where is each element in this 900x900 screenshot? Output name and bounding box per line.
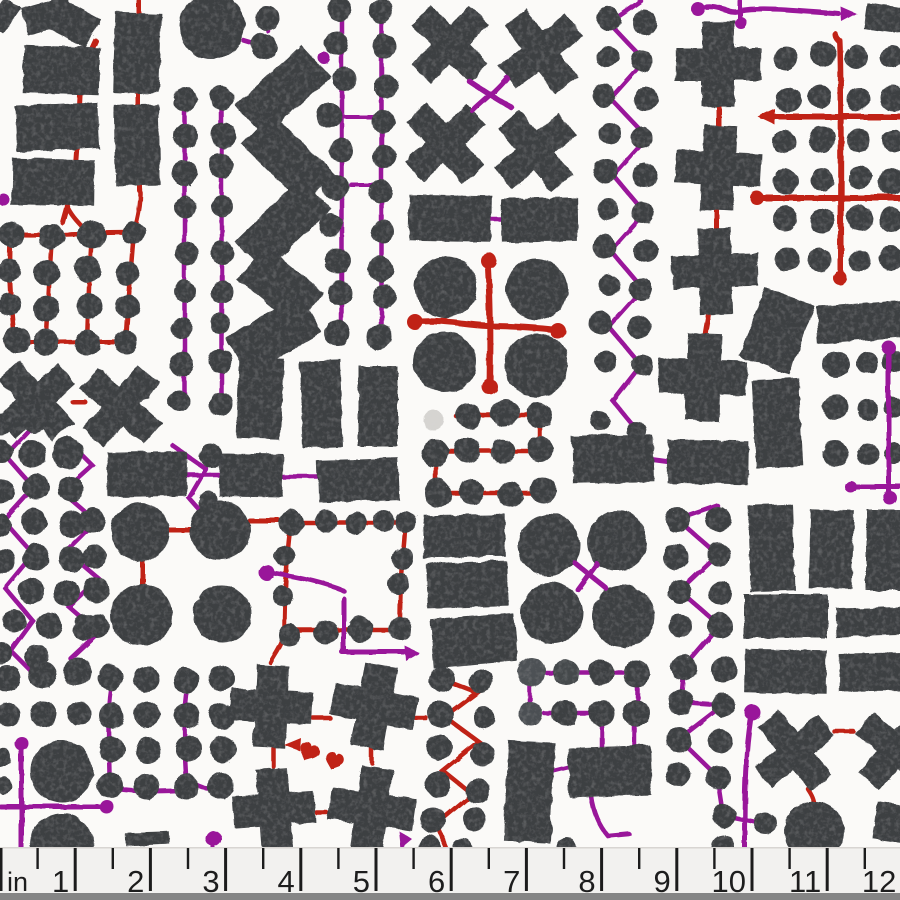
svg-text:in: in xyxy=(7,867,28,897)
